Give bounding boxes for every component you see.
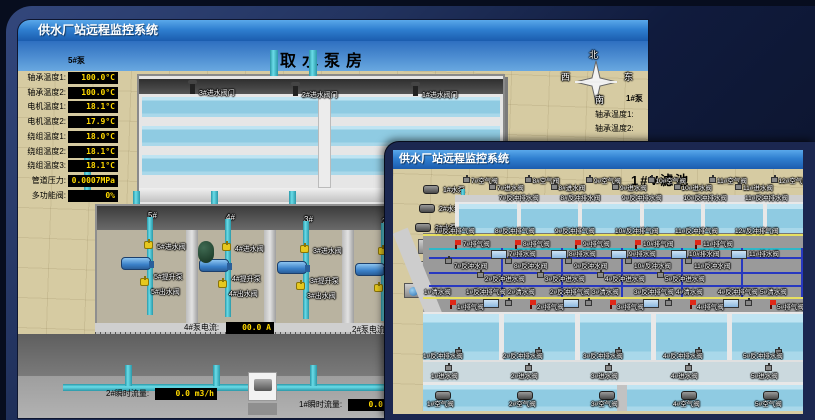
bottom-blower-icon[interactable] <box>435 391 451 400</box>
gal-vent-label: 8#排气阀 <box>523 242 550 249</box>
gal-backwash-inlet-label: 5#反冲进水阀 <box>665 277 705 284</box>
bottom-cell-divider <box>727 312 732 360</box>
bay-divider <box>264 230 276 327</box>
gal-clean-rail-label: 1#清水阀 <box>424 290 451 297</box>
gal-backwash-vent-label: 10#反冲排气阀 <box>615 229 658 236</box>
bottom-cell-divider <box>575 312 580 360</box>
bay-inlet-valve-icon[interactable] <box>300 245 309 253</box>
gal-backwash-water-label: 7#反冲水阀 <box>454 264 487 271</box>
top-inlet-valve-label: 7#进水阀 <box>497 186 524 193</box>
bottom-inlet-valve-label: 5#进水阀 <box>751 374 778 381</box>
bay-outlet-valve-label: 5#出水阀 <box>151 289 180 296</box>
bottom-inlet-valve-label: 4#进水阀 <box>671 374 698 381</box>
gal-clean-rail-label: 3#反冲排气阀 <box>634 290 674 297</box>
bottom-inlet-valve-label: 3#进水阀 <box>591 374 618 381</box>
top-air-valve-label: 12#空气阀 <box>779 179 804 186</box>
inlet-gate-label: 2#进水阀门 <box>302 92 338 99</box>
gal-backwash-inlet-icon[interactable] <box>657 272 664 278</box>
gal-pipe-blue <box>429 285 803 287</box>
gal-drain-box-label: 9#排水阀 <box>629 252 656 259</box>
outlet-stub-pipe <box>125 365 132 386</box>
bottom-air-valve-label: 5#空气阀 <box>755 402 782 409</box>
gal-backwash-inlet-icon[interactable] <box>597 272 604 278</box>
pump-panel-value: 18.1°C <box>68 160 118 172</box>
gal-bottom-valve-icon[interactable] <box>505 300 512 306</box>
gal-backwash-vent-label: 9#反冲排气阀 <box>555 229 595 236</box>
filter-pool-scene: 1#V滤池 1#水泵2#水泵3#水泵1#风机2#风机3#风机7#空气阀8#空气阀… <box>393 169 803 414</box>
back-window-titlebar: 供水厂站远程监控系统 <box>18 20 648 41</box>
flow-meter-body <box>254 379 272 391</box>
bottom-air-valve-label: 2#空气阀 <box>509 402 536 409</box>
compass-west-label: 西 <box>561 73 570 82</box>
top-inlet-valve-icon[interactable] <box>674 184 681 190</box>
compass-east-label: 东 <box>624 73 633 82</box>
pump-panel-value: 18.1°C <box>68 146 118 158</box>
inlet-gate-valve-icon[interactable] <box>293 85 298 96</box>
gal-backwash-water-icon[interactable] <box>565 258 572 264</box>
flow-left-label: 2#瞬时流量: <box>106 390 149 398</box>
gal-backwash-vent-label: 11#反冲排气阀 <box>675 229 718 236</box>
top-drain-valve-label: 8#反冲排水阀 <box>561 196 601 203</box>
bottom-blower-icon[interactable] <box>763 391 779 400</box>
flow-left-value: 0.0 m3/h <box>155 388 217 400</box>
bay-outlet-valve-label: 3#出水阀 <box>307 293 336 300</box>
gal-vent-label: 10#排气阀 <box>643 242 673 249</box>
pump-panel-row-label: 绕组温度2: <box>18 148 66 156</box>
inlet-gate-valve-icon[interactable] <box>413 85 418 96</box>
desktop: 供水厂站远程监控系统 取水泵房 3#进水阀门2#进水阀门1#进水阀门北西南东1#… <box>0 0 815 420</box>
top-inlet-valve-label: 9#进水阀 <box>620 186 647 193</box>
gal-bottom-valve-icon[interactable] <box>745 300 752 306</box>
gal-backwash-inlet-label: 2#反冲进水阀 <box>485 277 525 284</box>
bottom-inlet-valve-icon[interactable] <box>445 365 452 371</box>
right-panel-row-label: 轴承温度2: <box>595 125 634 133</box>
right-panel-row-label: 轴承温度1: <box>595 111 634 119</box>
gal-drain-box-label: 7#排水阀 <box>509 252 536 259</box>
top-air-valve-icon[interactable] <box>709 177 716 183</box>
gal-bottom-vent-flag-icon[interactable] <box>610 300 616 305</box>
bay-inlet-valve-label: 3#进水阀 <box>313 248 342 255</box>
bottom-blower-icon[interactable] <box>681 391 697 400</box>
back-window-title: 供水厂站远程监控系统 <box>38 23 158 37</box>
gal-pipe-vert <box>801 248 803 297</box>
top-inlet-valve-icon[interactable] <box>735 184 742 190</box>
gal-bottom-vent-label: 2#排气阀 <box>537 305 564 312</box>
front-window: 供水厂站远程监控系统 1#V滤池 1#水泵2#水泵3#水泵1#风机2#风机3#风… <box>385 142 815 420</box>
bay-pump-label: 3#提升泵 <box>310 278 339 285</box>
pump-panel-row-label: 轴承温度2: <box>18 89 66 97</box>
bay-outlet-valve-icon[interactable] <box>140 278 149 286</box>
pump-panel-row-label: 管道压力: <box>18 177 66 185</box>
bay-outlet-valve-icon[interactable] <box>374 284 383 292</box>
gal-backwash-vent-label: 12#反冲排气阀 <box>735 229 778 236</box>
bay-inlet-valve-icon[interactable] <box>144 241 153 249</box>
gal-vent-flag-icon[interactable] <box>635 240 641 245</box>
top-drain-valve-label: 10#反冲排水阀 <box>684 196 727 203</box>
feed-pump-icon[interactable] <box>423 185 439 194</box>
gal-backwash-inlet-label: 4#反冲进水阀 <box>605 277 645 284</box>
gal-backwash-water-label: 9#反冲水阀 <box>574 264 607 271</box>
top-inlet-valve-icon[interactable] <box>551 184 558 190</box>
pump-panel-row-label: 绕组温度1: <box>18 133 66 141</box>
bottom-inlet-valve-icon[interactable] <box>765 365 772 371</box>
feed-pump-icon[interactable] <box>415 223 431 232</box>
top-drain-valve-label: 11#反冲排水阀 <box>745 196 788 203</box>
gal-vent-label: 9#排气阀 <box>583 242 610 249</box>
gal-backwash-water-label: 11#反冲水阀 <box>694 264 730 271</box>
right-panel-header: 1#泵 <box>626 95 643 103</box>
feed-pump-icon[interactable] <box>419 204 435 213</box>
gal-vent-flag-icon[interactable] <box>515 240 521 245</box>
gal-clean-rail-label: 2#反冲排气阀 <box>550 290 590 297</box>
pump-panel-value: 100.0°C <box>68 72 118 84</box>
bay-inlet-valve-label: 4#进水阀 <box>235 246 264 253</box>
outlet-stub-pipe <box>310 365 317 386</box>
bay-outlet-valve-label: 4#出水阀 <box>229 291 258 298</box>
pump-panel-header: 5#泵 <box>68 57 85 65</box>
top-inlet-valve-icon[interactable] <box>489 184 496 190</box>
gal-drain-box-label: 11#排水阀 <box>749 252 779 259</box>
pump-current-value: 00.0 A <box>226 322 274 334</box>
gal-bottom-vent-label: 3#排气阀 <box>617 305 644 312</box>
bay-pump-label: 4#提升泵 <box>232 276 261 283</box>
gal-bottom-vent-flag-icon[interactable] <box>690 300 696 305</box>
gal-clean-rail-label: 1#反冲排气阀 <box>466 290 506 297</box>
pump-current-label: 4#泵电流: <box>184 324 219 332</box>
green-tank <box>198 241 214 263</box>
bay-outlet-valve-icon[interactable] <box>218 280 227 288</box>
gal-bottom-vent-label: 5#排气阀 <box>777 305 803 312</box>
front-window-titlebar: 供水厂站远程监控系统 <box>393 150 803 169</box>
top-air-valve-icon[interactable] <box>525 177 532 183</box>
pump-house-scene-title: 取水泵房 <box>280 47 368 71</box>
gal-backwash-vent-label: 7#反冲排气阀 <box>435 229 475 236</box>
gal-vent-flag-icon[interactable] <box>455 240 461 245</box>
gallery-rail-bottom <box>423 297 803 299</box>
gal-bottom-box-icon[interactable] <box>723 299 739 308</box>
bottom-blower-icon[interactable] <box>599 391 615 400</box>
bottom-air-valve-label: 1#空气阀 <box>427 402 454 409</box>
top-drain-valve-label: 9#反冲排水阀 <box>622 196 662 203</box>
pump-panel-row-label: 轴承温度1: <box>18 74 66 82</box>
pump-current2-label: 2#泵电流: <box>352 326 387 334</box>
gal-backwash-inlet-icon[interactable] <box>537 272 544 278</box>
top-drain-valve-label: 7#反冲排水阀 <box>499 196 539 203</box>
gal-backwash-water-label: 10#反冲水阀 <box>634 264 671 271</box>
pump-panel-value: 0% <box>68 190 118 202</box>
top-air-valve-icon[interactable] <box>648 177 655 183</box>
gal-backwash-water-icon[interactable] <box>445 258 452 264</box>
compass-north-label: 北 <box>589 51 598 60</box>
bottom-air-valve-label: 4#空气阀 <box>673 402 700 409</box>
front-window-title: 供水厂站远程监控系统 <box>399 153 509 165</box>
gal-bottom-valve-icon[interactable] <box>585 300 592 306</box>
flow-meter-icon[interactable] <box>248 372 277 401</box>
top-inlet-valve-icon[interactable] <box>612 184 619 190</box>
gal-vent-label: 11#排气阀 <box>703 242 733 249</box>
top-air-valve-icon[interactable] <box>771 177 778 183</box>
gal-vent-label: 7#排气阀 <box>463 242 490 249</box>
bottom-ground <box>393 411 803 414</box>
gal-drain-box-label: 10#排水阀 <box>689 252 719 259</box>
pump-panel-value: 0.0007MPa <box>68 175 118 187</box>
bay-pump-icon[interactable] <box>277 261 307 274</box>
gal-bottom-box-icon[interactable] <box>563 299 579 308</box>
pump-panel-row-label: 电机温度1: <box>18 103 66 111</box>
pump-panel-row-label: 多功能阀: <box>18 192 66 200</box>
intake-basin-pier <box>318 94 331 188</box>
pump-panel-row-label: 电机温度2: <box>18 118 66 126</box>
gal-clean-rail-label: 3#清水阀 <box>592 290 619 297</box>
top-inlet-valve-label: 10#进水阀 <box>682 186 712 193</box>
gal-bottom-box-icon[interactable] <box>483 299 499 308</box>
gal-bottom-vent-label: 4#排气阀 <box>697 305 724 312</box>
gal-clean-rail-label: 5#清水阀 <box>760 290 787 297</box>
bottom-air-valve-label: 3#空气阀 <box>591 402 618 409</box>
bay-pump-icon[interactable] <box>355 263 385 276</box>
clear-well-divider <box>617 385 627 411</box>
pump-panel-value: 17.9°C <box>68 116 118 128</box>
bay-inlet-valve-icon[interactable] <box>222 243 231 251</box>
flow-right-label: 1#瞬时流量: <box>299 401 342 409</box>
gal-drain-box-label: 8#排水阀 <box>569 252 596 259</box>
gal-clean-rail-label: 4#清水阀 <box>676 290 703 297</box>
pump-panel-value: 100.0°C <box>68 87 118 99</box>
inlet-gate-valve-icon[interactable] <box>190 83 195 94</box>
gal-pipe-blue <box>429 272 803 274</box>
bay-pump-icon[interactable] <box>121 257 151 270</box>
bottom-inlet-valve-icon[interactable] <box>525 365 532 371</box>
bottom-inlet-valve-icon[interactable] <box>685 365 692 371</box>
inlet-gate-label: 1#进水阀门 <box>422 92 458 99</box>
top-inlet-valve-label: 11#进水阀 <box>743 186 773 193</box>
gal-backwash-inlet-label: 3#反冲进水阀 <box>545 277 585 284</box>
gal-bottom-valve-icon[interactable] <box>665 300 672 306</box>
gal-backwash-water-icon[interactable] <box>505 258 512 264</box>
flow-meter-base <box>248 403 277 415</box>
pipe <box>270 50 278 76</box>
bottom-cell-divider <box>651 312 656 360</box>
pump-panel-row-label: 绕组温度3: <box>18 162 66 170</box>
gal-backwash-water-icon[interactable] <box>625 258 632 264</box>
inlet-gate-label: 3#进水阀门 <box>199 90 235 97</box>
outlet-stub-pipe <box>213 365 220 386</box>
gal-clean-rail-label: 2#清水阀 <box>508 290 535 297</box>
gal-backwash-water-icon[interactable] <box>685 258 692 264</box>
gal-vent-flag-icon[interactable] <box>695 240 701 245</box>
pipe <box>309 50 317 76</box>
gal-bottom-vent-flag-icon[interactable] <box>450 300 456 305</box>
bottom-inlet-valve-label: 1#进水阀 <box>431 374 458 381</box>
bottom-blower-icon[interactable] <box>517 391 533 400</box>
gal-bottom-vent-label: 1#排气阀 <box>457 305 484 312</box>
gal-bottom-box-icon[interactable] <box>643 299 659 308</box>
pump-panel-value: 18.0°C <box>68 131 118 143</box>
top-inlet-valve-label: 8#进水阀 <box>559 186 586 193</box>
gal-backwash-vent-label: 8#反冲排气阀 <box>495 229 535 236</box>
bay-inlet-valve-label: 5#进水阀 <box>157 244 186 251</box>
gal-vent-flag-icon[interactable] <box>575 240 581 245</box>
gal-drain-box-icon[interactable] <box>731 250 747 259</box>
pump-panel-value: 18.1°C <box>68 101 118 113</box>
bottom-inlet-valve-label: 2#进水阀 <box>511 374 538 381</box>
bay-divider <box>342 230 354 327</box>
gal-bottom-vent-flag-icon[interactable] <box>530 300 536 305</box>
bay-pump-label: 5#提升泵 <box>154 274 183 281</box>
top-air-valve-icon[interactable] <box>463 177 470 183</box>
gal-backwash-inlet-icon[interactable] <box>477 272 484 278</box>
top-air-valve-icon[interactable] <box>586 177 593 183</box>
bottom-inlet-valve-icon[interactable] <box>605 365 612 371</box>
gal-backwash-water-label: 8#反冲水阀 <box>514 264 547 271</box>
compass-south-label: 南 <box>595 96 604 105</box>
gal-bottom-vent-flag-icon[interactable] <box>770 300 776 305</box>
bay-divider <box>186 230 198 327</box>
bay-outlet-valve-icon[interactable] <box>296 282 305 290</box>
gal-clean-rail-label: 4#反冲排气阀 <box>718 290 758 297</box>
